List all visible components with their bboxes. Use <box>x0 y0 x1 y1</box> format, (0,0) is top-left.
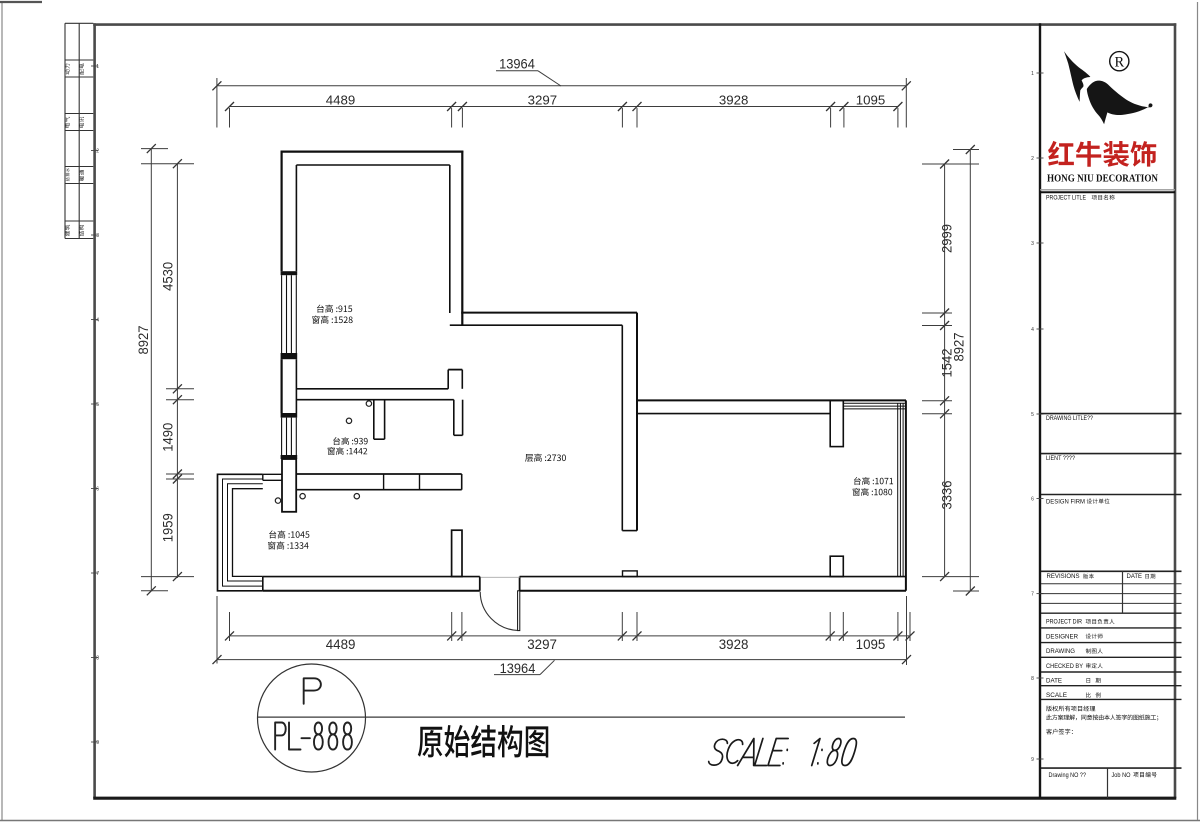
svg-text:13964: 13964 <box>500 660 536 676</box>
svg-text:R: R <box>1114 55 1124 71</box>
svg-text:LIENT ????: LIENT ???? <box>1046 455 1075 462</box>
svg-text:9: 9 <box>1031 757 1034 763</box>
svg-text:6: 6 <box>1031 497 1034 503</box>
svg-text:2: 2 <box>96 148 99 154</box>
svg-text:DATE: DATE <box>1046 678 1063 685</box>
svg-text:1959: 1959 <box>161 513 176 542</box>
svg-text:4489: 4489 <box>326 92 356 107</box>
svg-text:DRAWING LITLE??: DRAWING LITLE?? <box>1046 415 1093 422</box>
svg-text:PROJECT DIR: PROJECT DIR <box>1046 619 1082 626</box>
svg-text:7: 7 <box>96 571 99 577</box>
svg-text:3336: 3336 <box>940 481 955 510</box>
svg-text:3928: 3928 <box>719 92 749 107</box>
svg-text:REVISIONS: REVISIONS <box>1047 573 1081 580</box>
svg-text:1490: 1490 <box>161 423 176 452</box>
svg-text:3297: 3297 <box>527 636 557 652</box>
svg-text:4530: 4530 <box>161 262 176 291</box>
svg-text:1: 1 <box>96 64 99 70</box>
svg-text:3: 3 <box>96 233 99 239</box>
svg-text:CHECKED BY: CHECKED BY <box>1046 663 1084 670</box>
svg-text:3297: 3297 <box>528 92 558 107</box>
svg-text:1095: 1095 <box>856 92 886 107</box>
svg-text:8: 8 <box>96 655 99 661</box>
svg-text:DRAWING: DRAWING <box>1046 648 1075 655</box>
svg-text:Job NO: Job NO <box>1112 772 1131 779</box>
svg-text:3928: 3928 <box>719 636 749 652</box>
svg-text:DATE: DATE <box>1127 573 1143 580</box>
svg-text:1542: 1542 <box>940 349 955 378</box>
svg-text:8: 8 <box>1031 676 1034 682</box>
svg-text:9: 9 <box>96 740 99 746</box>
svg-text:6: 6 <box>96 486 99 492</box>
svg-text:8927: 8927 <box>136 326 151 355</box>
svg-text:HONG NIU DECORATION: HONG NIU DECORATION <box>1047 174 1159 185</box>
svg-text:DESIGN FIRM: DESIGN FIRM <box>1046 498 1085 505</box>
svg-text:1095: 1095 <box>856 636 886 652</box>
svg-text:PROJECT LITLE: PROJECT LITLE <box>1046 195 1086 202</box>
svg-text:4: 4 <box>96 317 99 323</box>
svg-text:DESIGNER: DESIGNER <box>1046 633 1078 640</box>
svg-text:5: 5 <box>1031 412 1034 418</box>
svg-text:7: 7 <box>1031 592 1034 598</box>
svg-text:13964: 13964 <box>499 56 535 72</box>
svg-text:2: 2 <box>1031 156 1034 162</box>
svg-text:4489: 4489 <box>326 636 356 652</box>
svg-text:5: 5 <box>96 402 99 408</box>
svg-text:1: 1 <box>1031 71 1034 77</box>
svg-text:SCALE: SCALE <box>1046 692 1068 699</box>
svg-text:2999: 2999 <box>940 224 955 253</box>
svg-text:3: 3 <box>1031 241 1034 247</box>
svg-text:Drawing NO ??: Drawing NO ?? <box>1049 772 1087 779</box>
svg-text:4: 4 <box>1031 327 1034 333</box>
